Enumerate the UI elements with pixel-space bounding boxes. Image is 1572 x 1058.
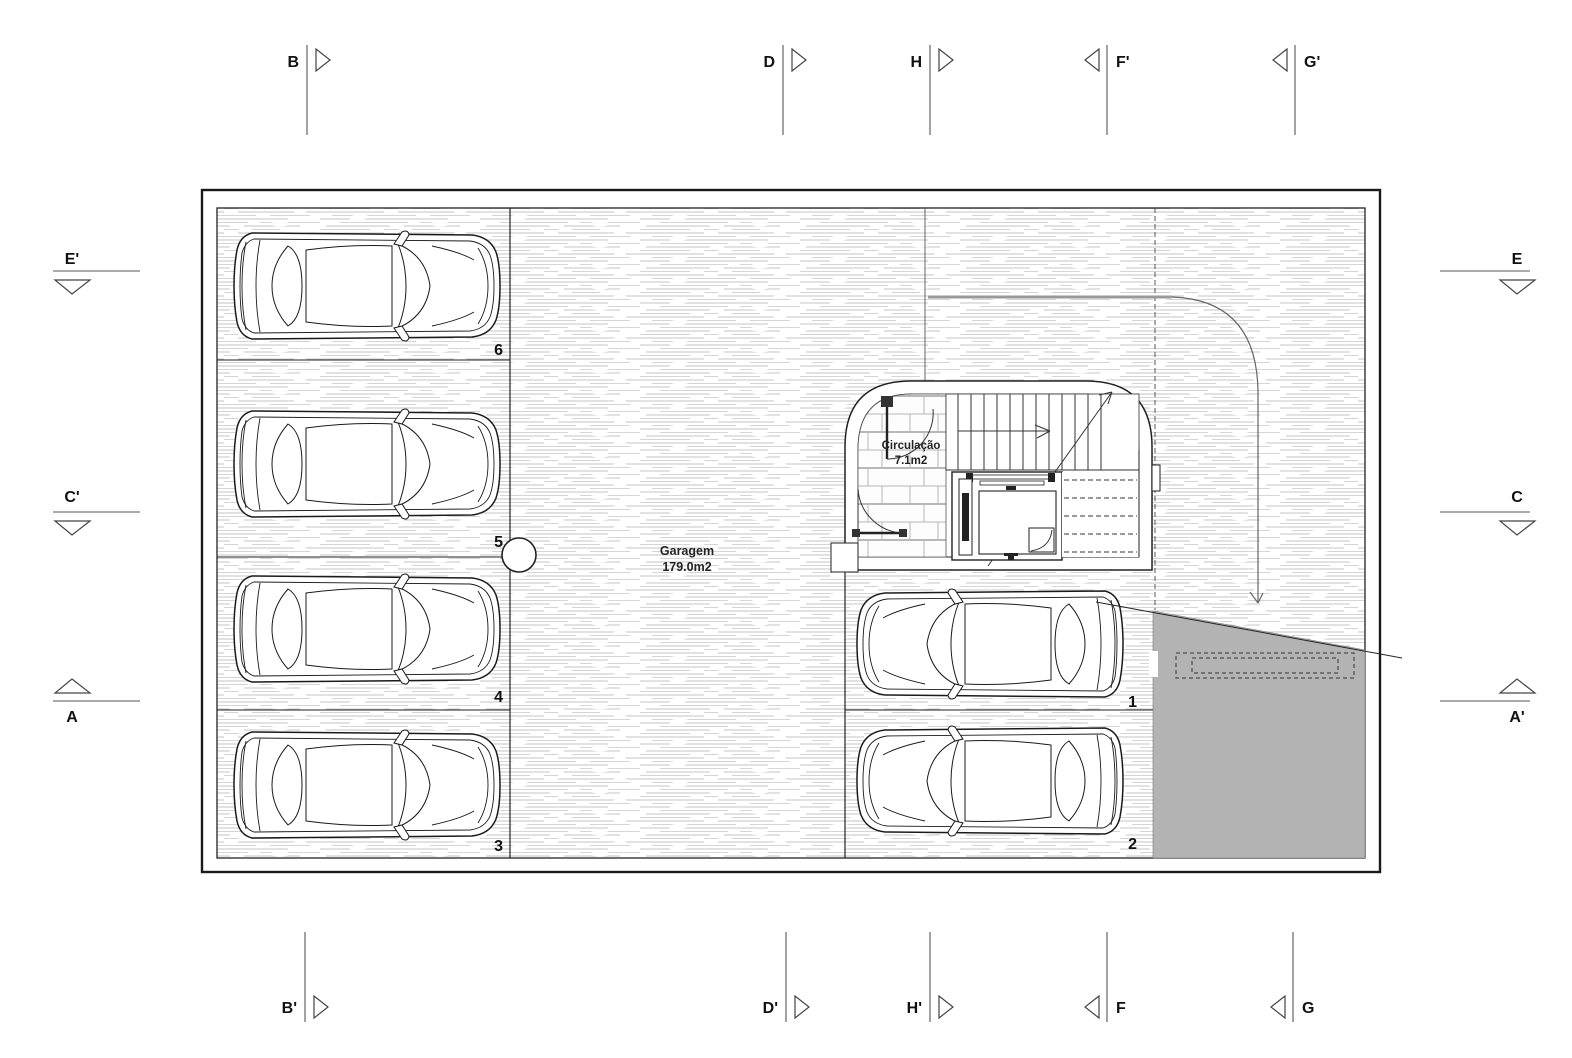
section-flag-icon: [1500, 521, 1535, 535]
section-label: F': [1116, 54, 1130, 71]
garage-area: 179.0m2: [662, 560, 711, 574]
section-marker-H: H: [910, 45, 953, 135]
stall-number-6: 6: [494, 342, 503, 359]
section-flag-icon: [1085, 49, 1099, 71]
section-flag-icon: [939, 49, 953, 71]
section-marker-D: D: [763, 45, 806, 135]
section-flag-icon: [55, 679, 90, 693]
car-icon: [857, 589, 1123, 699]
circulation-label: Circulação: [882, 440, 941, 452]
elevator-door: [972, 475, 1050, 479]
section-flag-icon: [795, 996, 809, 1018]
section-flag-icon: [1500, 280, 1535, 294]
section-marker-F-prime: F': [1085, 45, 1130, 135]
section-label: H': [907, 1000, 922, 1017]
section-flag-icon: [1271, 996, 1285, 1018]
section-marker-C-prime: C': [53, 489, 140, 535]
section-flag-icon: [316, 49, 330, 71]
ramp-gray-fill: [1153, 611, 1365, 858]
section-marker-B2: B': [282, 932, 328, 1022]
section-marker-G-prime: G': [1273, 45, 1320, 135]
stall-number-2: 2: [1128, 836, 1137, 853]
stall-number-1: 1: [1128, 694, 1137, 711]
section-marker-A-prime: A': [1440, 679, 1535, 726]
section-flag-icon: [55, 280, 90, 294]
section-label: E': [65, 251, 79, 268]
section-label: H: [910, 54, 922, 71]
section-label: D: [763, 54, 775, 71]
stall-number-4: 4: [494, 689, 503, 706]
section-label: C': [64, 489, 79, 506]
section-label: G': [1304, 54, 1320, 71]
circulation-area: 7.1m2: [895, 455, 928, 467]
elevator: [952, 472, 1062, 560]
section-flag-icon: [939, 996, 953, 1018]
section-marker-E: E: [1440, 251, 1535, 294]
section-label: D': [763, 1000, 778, 1017]
section-marker-C: C: [1440, 489, 1535, 535]
section-flag-icon: [1273, 49, 1287, 71]
garage-floor-plan-drawing: Circulação 7.1m2 Garagem 179.0m2 6 5 4 3…: [0, 0, 1572, 1058]
section-flag-icon: [314, 996, 328, 1018]
section-label: A': [1509, 709, 1524, 726]
section-marker-F: F: [1085, 932, 1126, 1022]
section-label: F: [1116, 1000, 1126, 1017]
section-label: B: [287, 54, 299, 71]
section-label: A: [66, 709, 78, 726]
garage-label: Garagem: [660, 544, 714, 558]
floor-plan-page: Circulação 7.1m2 Garagem 179.0m2 6 5 4 3…: [0, 0, 1572, 1058]
plan-body: Circulação 7.1m2 Garagem 179.0m2 6 5 4 3…: [202, 190, 1402, 872]
section-marker-E-prime: E': [53, 251, 140, 294]
car-icon: [234, 730, 500, 840]
section-marker-H2: H': [907, 932, 953, 1022]
stall-number-5: 5: [494, 534, 503, 551]
vestibule-step: [831, 543, 858, 572]
section-marker-D2: D': [763, 932, 809, 1022]
core-pilaster: [1152, 465, 1160, 491]
section-label: B': [282, 1000, 297, 1017]
section-label: G: [1302, 1000, 1314, 1017]
stall-number-3: 3: [494, 838, 503, 855]
section-marker-A: A: [53, 679, 140, 726]
section-label: E: [1512, 251, 1523, 268]
section-flag-icon: [792, 49, 806, 71]
car-icon: [857, 726, 1123, 836]
ramp-notch: [1149, 651, 1158, 677]
section-marker-G: G: [1271, 932, 1314, 1022]
car-icon: [234, 231, 500, 341]
section-marker-B: B: [287, 45, 330, 135]
section-flag-icon: [1085, 996, 1099, 1018]
section-label: C: [1511, 489, 1523, 506]
section-flag-icon: [1500, 679, 1535, 693]
column-circle: [502, 538, 536, 572]
stair-core: Circulação 7.1m2: [831, 381, 1160, 572]
section-flag-icon: [55, 521, 90, 535]
car-icon: [234, 409, 500, 519]
car-icon: [234, 574, 500, 684]
